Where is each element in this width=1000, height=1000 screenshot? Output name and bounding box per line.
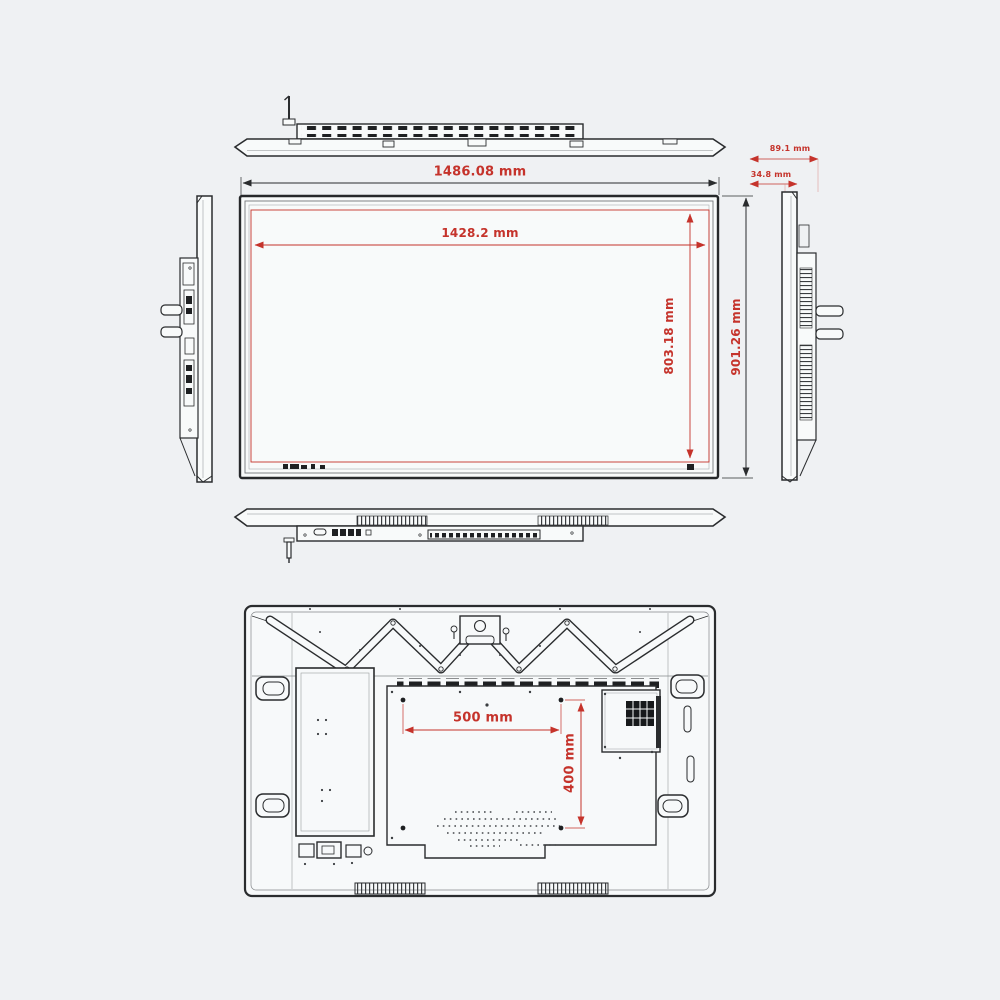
dimension-drawing-canvas: 1486.08 mm 1428.2 mm 803.18 mm 901.26 mm… — [0, 0, 1000, 1000]
left-side-view — [161, 196, 212, 482]
right-side-view — [782, 192, 843, 482]
label-top-depth: 34.8 mm — [751, 171, 792, 179]
line-art — [0, 0, 1000, 1000]
label-overall-width: 1486.08 mm — [434, 166, 527, 179]
speaker-grille-right — [538, 883, 608, 894]
speaker-grille-left — [355, 883, 425, 894]
rear-module-box — [602, 690, 661, 753]
back-view — [245, 606, 715, 896]
label-vesa-height: 400 mm — [564, 733, 577, 793]
bottom-view — [235, 509, 725, 563]
dim-line-overall-width — [241, 177, 719, 195]
label-depth: 89.1 mm — [770, 145, 811, 153]
label-overall-height: 901.26 mm — [730, 298, 742, 375]
center-mount-bracket — [451, 616, 509, 644]
label-vesa-width: 500 mm — [453, 712, 513, 725]
label-display-height: 803.18 mm — [663, 297, 675, 374]
label-display-width: 1428.2 mm — [441, 227, 518, 239]
left-rear-plate — [296, 668, 374, 836]
top-view — [235, 96, 725, 156]
